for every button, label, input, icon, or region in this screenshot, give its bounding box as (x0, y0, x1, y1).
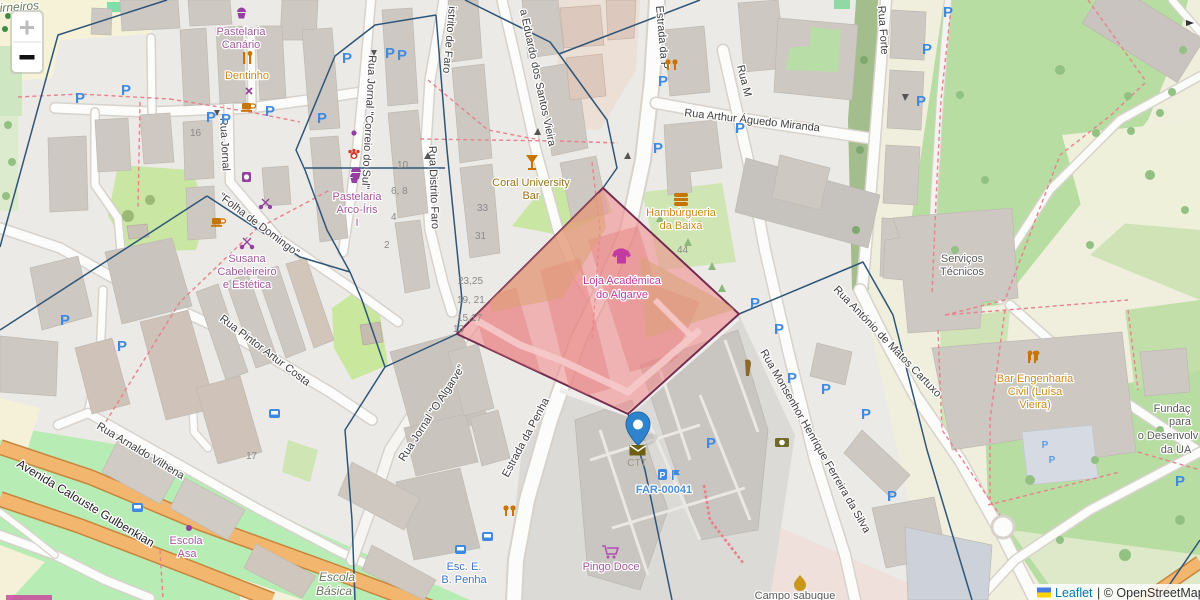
svg-text:Escola: Escola (169, 535, 203, 547)
svg-text:Pastelaria: Pastelaria (217, 26, 267, 38)
svg-text:2: 2 (384, 240, 390, 251)
svg-text:P: P (658, 73, 668, 90)
svg-text:Dentinho: Dentinho (225, 70, 269, 82)
svg-text:P: P (660, 470, 666, 480)
svg-text:33: 33 (477, 203, 489, 214)
svg-text:6, 8: 6, 8 (391, 186, 408, 197)
svg-text:P: P (206, 109, 216, 126)
svg-text:Esc. E.: Esc. E. (447, 561, 482, 573)
svg-text:P: P (75, 90, 85, 107)
svg-text:P: P (265, 103, 275, 120)
svg-text:I: I (355, 217, 358, 229)
svg-text:Pastelaria: Pastelaria (333, 191, 383, 203)
svg-text:para: para (1169, 416, 1192, 428)
svg-text:Leaflet: Leaflet (1055, 586, 1093, 600)
svg-text:Bar: Bar (522, 190, 539, 202)
svg-text:17: 17 (246, 451, 258, 462)
svg-text:Bar Engenharia: Bar Engenharia (997, 373, 1074, 385)
svg-text:13: 13 (453, 324, 465, 335)
svg-text:| © OpenStreetMap: | © OpenStreetMap (1097, 586, 1200, 600)
svg-text:Vieira): Vieira) (1019, 399, 1051, 411)
svg-text:P: P (221, 111, 231, 128)
svg-text:P: P (1042, 440, 1049, 451)
svg-text:P: P (922, 41, 932, 58)
svg-text:31: 31 (475, 231, 487, 242)
svg-text:Serviços: Serviços (941, 253, 984, 265)
svg-text:P: P (60, 312, 70, 329)
svg-text:FAR-00041: FAR-00041 (636, 484, 692, 496)
svg-text:Susana: Susana (228, 253, 266, 265)
svg-text:P: P (916, 93, 926, 110)
svg-text:Pingo Doce: Pingo Doce (583, 561, 640, 573)
svg-text:P: P (1049, 455, 1056, 466)
svg-text:P: P (861, 406, 871, 423)
svg-text:P: P (342, 50, 352, 67)
svg-text:Fundaç: Fundaç (1154, 403, 1191, 415)
svg-text:P: P (735, 120, 745, 137)
svg-text:Escola: Escola (319, 570, 355, 584)
svg-text:19, 21: 19, 21 (457, 295, 485, 306)
svg-text:do Algarve: do Algarve (596, 289, 648, 301)
svg-text:23,25: 23,25 (458, 276, 483, 287)
svg-text:P: P (787, 370, 797, 387)
svg-text:44: 44 (677, 245, 689, 256)
svg-text:P: P (943, 4, 953, 21)
svg-text:P: P (706, 435, 716, 452)
svg-text:o Desenvolv: o Desenvolv (1138, 430, 1199, 442)
svg-text:da Baixa: da Baixa (660, 220, 704, 232)
svg-text:Cabeleireiro: Cabeleireiro (217, 266, 276, 278)
svg-text:P: P (1175, 473, 1185, 490)
svg-text:P: P (317, 110, 327, 127)
svg-text:CTT: CTT (627, 458, 646, 469)
svg-text:da UA: da UA (1161, 444, 1192, 456)
svg-text:P: P (887, 488, 897, 505)
svg-text:P: P (821, 381, 831, 398)
svg-text:P: P (397, 47, 407, 64)
svg-text:Técnicos: Técnicos (940, 266, 985, 278)
svg-text:Campo sabugue: Campo sabugue (755, 590, 836, 600)
svg-text:P: P (121, 82, 131, 99)
svg-text:Asa: Asa (178, 548, 198, 560)
svg-text:Básica: Básica (316, 584, 352, 598)
svg-text:Loja Académica: Loja Académica (583, 275, 662, 287)
svg-text:16: 16 (190, 128, 202, 139)
svg-text:P: P (385, 45, 395, 62)
svg-text:Arco-Íris: Arco-Íris (337, 203, 378, 216)
svg-text:10: 10 (397, 160, 409, 171)
svg-text:e Estética: e Estética (223, 279, 272, 291)
svg-text:P: P (117, 338, 127, 355)
svg-text:Hambúrgueria: Hambúrgueria (646, 207, 717, 219)
svg-text:P: P (774, 321, 784, 338)
svg-text:Civil (Luísa: Civil (Luísa (1008, 386, 1063, 398)
svg-text:P: P (750, 295, 760, 312)
svg-text:Coral University: Coral University (492, 177, 570, 189)
svg-text:P: P (653, 140, 663, 157)
svg-text:4: 4 (391, 212, 397, 223)
svg-text:B. Penha: B. Penha (441, 574, 487, 586)
svg-text:Canário: Canário (222, 39, 261, 51)
svg-text:15,17: 15,17 (457, 313, 482, 324)
